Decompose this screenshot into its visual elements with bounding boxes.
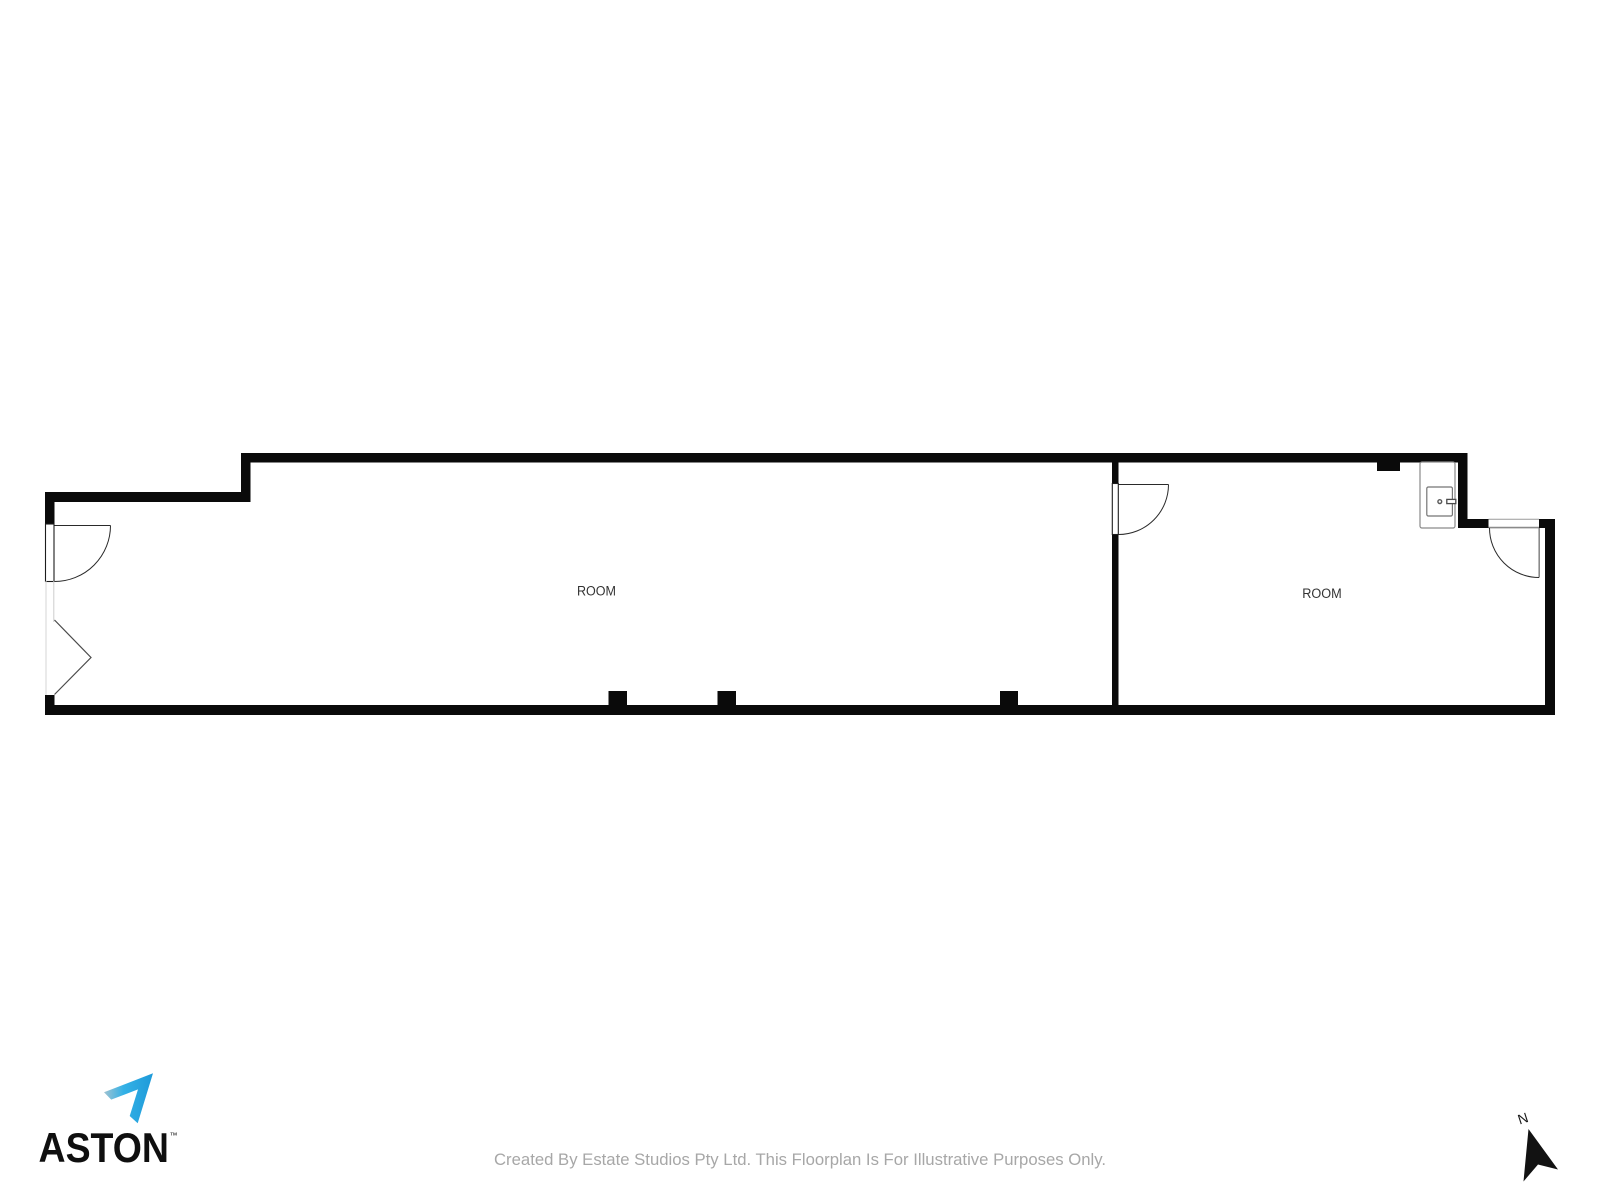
svg-text:ROOM: ROOM <box>577 584 616 599</box>
svg-text:ROOM: ROOM <box>1302 586 1342 601</box>
svg-text:Created By Estate Studios Pty: Created By Estate Studios Pty Ltd. This … <box>494 1151 1106 1169</box>
svg-text:ASTON: ASTON <box>39 1124 170 1171</box>
svg-text:™: ™ <box>170 1131 178 1140</box>
